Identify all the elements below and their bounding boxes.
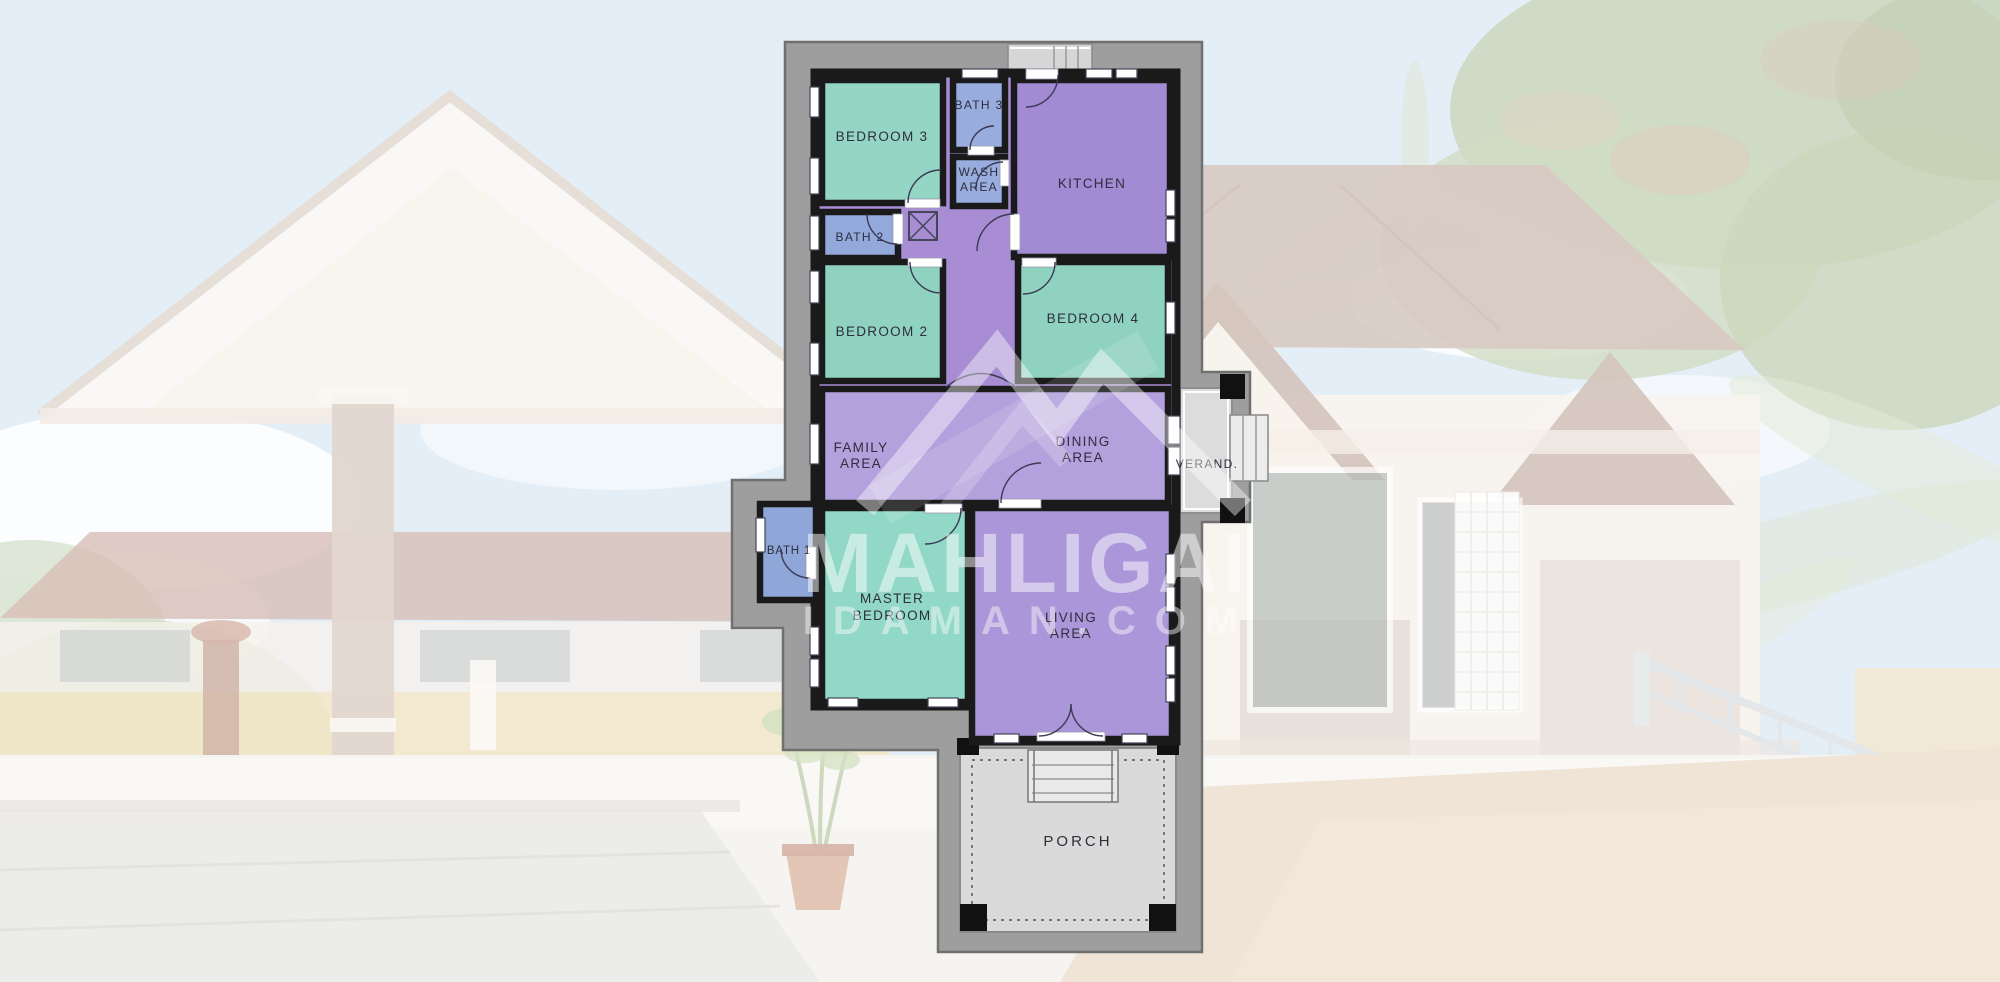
label-family-area: FAMILY [834, 440, 889, 455]
label-wash-area: WASH [959, 165, 1000, 179]
column-marker [909, 212, 937, 240]
label-wash-area: AREA [960, 180, 998, 194]
label-kitchen: KITCHEN [1058, 176, 1126, 191]
room-kitchen [1014, 80, 1170, 257]
label-bedroom-4: BEDROOM 4 [1047, 311, 1140, 326]
label-porch: PORCH [1043, 833, 1112, 850]
porch-post [1149, 904, 1176, 931]
porch-steps [1028, 750, 1118, 802]
verandah-post [1220, 374, 1245, 399]
label-bath-2: BATH 2 [836, 230, 885, 244]
verandah-steps [1230, 415, 1268, 481]
room-bedroom-2 [822, 262, 943, 381]
scene: BEDROOM 3 BATH 3 WASH AREA KITCHEN BATH … [0, 0, 2000, 982]
porch-post [960, 904, 987, 931]
label-bath-3: BATH 3 [955, 98, 1004, 112]
watermark-domain: IDAMAN.COM [803, 599, 1257, 643]
screenshot-root: BEDROOM 3 BATH 3 WASH AREA KITCHEN BATH … [0, 0, 2000, 982]
label-family-area: AREA [840, 456, 882, 471]
label-bedroom-2: BEDROOM 2 [836, 324, 929, 339]
room-bath-3 [953, 80, 1005, 150]
label-bedroom-3: BEDROOM 3 [836, 129, 929, 144]
watermark-title: MAHLIGAI [802, 516, 1249, 610]
